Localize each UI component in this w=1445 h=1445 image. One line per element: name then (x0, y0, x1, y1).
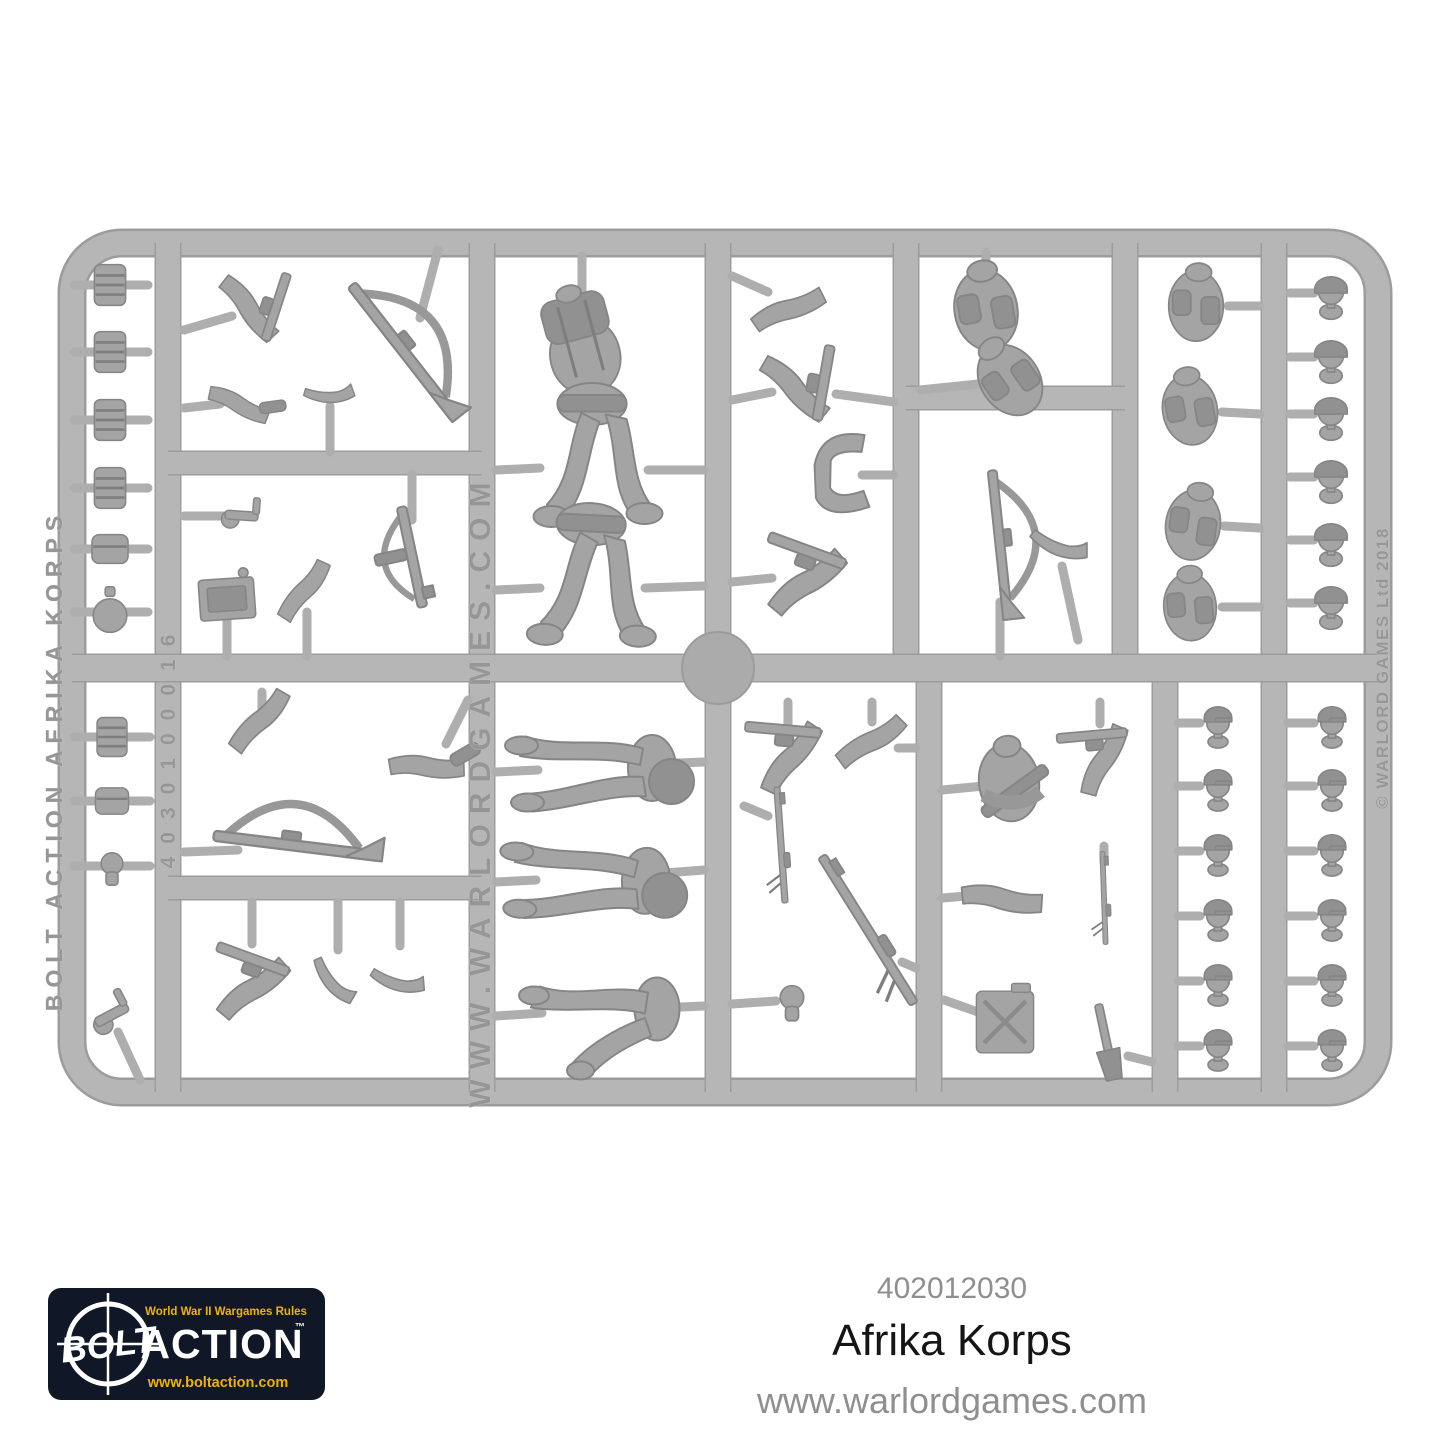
part-headcap (1318, 770, 1346, 811)
part-fist (780, 986, 803, 1021)
part-armgun (195, 936, 293, 1033)
part-gun (800, 850, 924, 1017)
part-head (1315, 398, 1348, 441)
part-headcap (1204, 707, 1232, 748)
part-headcap (1204, 965, 1232, 1006)
bolt-action-logo-art: BOLT World War II Wargames Rules ACTION … (48, 1288, 325, 1400)
part-cyl (94, 400, 125, 441)
part-torsogear (1169, 263, 1224, 341)
part-riflesling (348, 260, 489, 422)
part-shovel (1087, 1002, 1126, 1082)
product-website: www.warlordgames.com (702, 1380, 1202, 1422)
part-headcap (1204, 770, 1232, 811)
emboss-text-warlordgames-url: WWW.WARLORDGAMES.COM (464, 473, 497, 1108)
part-arm (748, 266, 831, 353)
part-headcap (1204, 1030, 1232, 1071)
logo-tagline: World War II Wargames Rules (145, 1306, 307, 1318)
part-headcap (1318, 900, 1346, 941)
emboss-text-bolt-action-afrika-korps: BOLT ACTION AFRIKA KORPS (41, 509, 67, 1011)
part-headcap (1318, 1030, 1346, 1071)
part-canteen (93, 587, 127, 633)
logo-word-action: ACTION (140, 1321, 303, 1367)
part-pouch (96, 788, 129, 814)
part-head (1315, 461, 1348, 504)
part-jerry (976, 984, 1033, 1053)
part-pistolhand (221, 496, 261, 530)
logo-url: www.boltaction.com (147, 1375, 288, 1391)
part-pouch (92, 535, 128, 564)
part-arm (957, 858, 1049, 941)
part-torsogear (1161, 479, 1226, 564)
part-torsogear (1160, 564, 1219, 643)
bolt-action-logo: BOLT World War II Wargames Rules ACTION … (48, 1288, 325, 1400)
caption-block: 402012030 Afrika Korps www.warlordgames.… (702, 1272, 1202, 1422)
part-boot (306, 956, 363, 1005)
product-photo: BOLT ACTION AFRIKA KORPS 4030100016 WWW.… (0, 0, 1445, 1445)
part-headcap (1318, 965, 1346, 1006)
emboss-text-mould-code: 4030100016 (157, 622, 180, 869)
part-head (1315, 524, 1348, 567)
part-head (1315, 587, 1348, 630)
part-headcap (1204, 835, 1232, 876)
part-cyl (94, 468, 125, 509)
part-cyl (97, 717, 127, 756)
part-boot (369, 954, 428, 1006)
part-torsogear (1156, 363, 1223, 449)
part-cyl (94, 332, 125, 373)
part-head (1315, 341, 1348, 384)
part-riflesling (988, 467, 1044, 620)
part-pistolhand (83, 988, 135, 1038)
part-legskneel (519, 978, 680, 1080)
part-headcap (1318, 835, 1346, 876)
sprue: BOLT ACTION AFRIKA KORPS 4030100016 WWW.… (0, 0, 1445, 1445)
part-armgun (740, 716, 823, 798)
part-smgtorso (970, 731, 1056, 826)
part-head (1315, 277, 1348, 320)
part-gun (1089, 851, 1112, 944)
part-headcap (1204, 900, 1232, 941)
part-smg (365, 504, 436, 615)
product-name: Afrika Korps (702, 1316, 1202, 1366)
part-armgun (753, 334, 841, 423)
part-armgun (1056, 723, 1133, 799)
emboss-text-copyright: © WARLORD GAMES Ltd 2018 (1373, 527, 1392, 809)
part-armgun (207, 255, 296, 345)
part-fist (101, 853, 123, 885)
logo-trademark: ™ (295, 1322, 305, 1333)
part-gun (760, 787, 793, 904)
product-sku: 402012030 (702, 1272, 1202, 1306)
part-cyl (94, 265, 125, 306)
part-plate (197, 567, 256, 621)
part-headcap (1318, 707, 1346, 748)
